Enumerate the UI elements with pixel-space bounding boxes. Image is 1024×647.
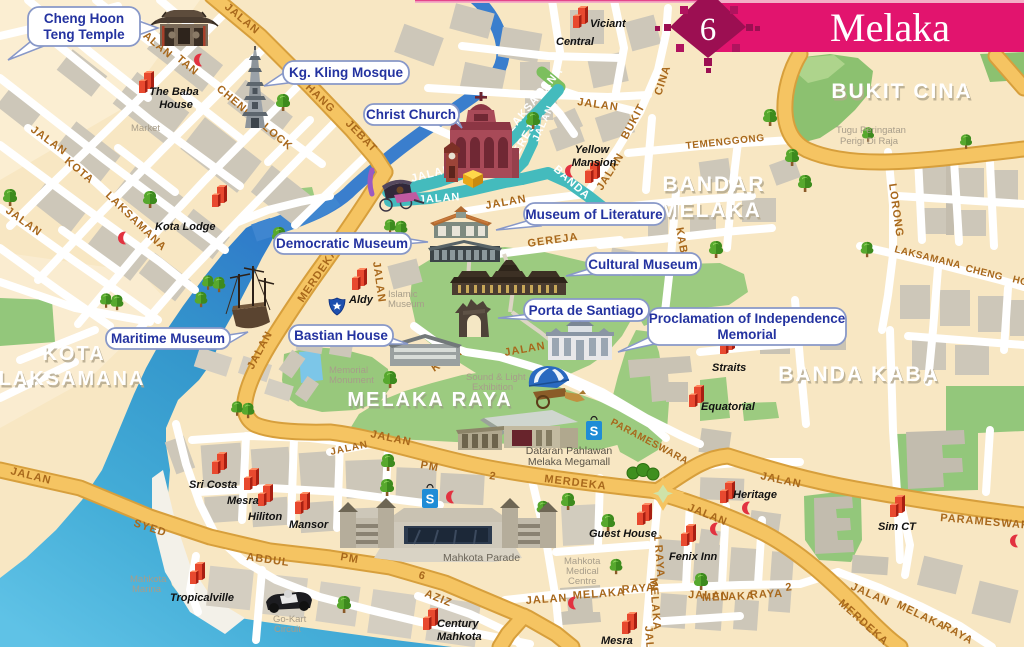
svg-text:Cheng Hoon: Cheng Hoon — [44, 11, 124, 26]
svg-text:Fenix Inn: Fenix Inn — [669, 551, 718, 563]
svg-text:Exhibition: Exhibition — [472, 382, 513, 393]
svg-text:Aldy: Aldy — [348, 294, 374, 306]
svg-text:Marina: Marina — [132, 584, 162, 595]
svg-text:Yellow: Yellow — [575, 144, 611, 156]
svg-text:Mahkota Parade: Mahkota Parade — [443, 552, 520, 564]
svg-text:Democratic Museum: Democratic Museum — [276, 236, 408, 251]
svg-text:Porta de Santiago: Porta de Santiago — [529, 303, 644, 318]
svg-text:Central: Central — [556, 36, 595, 48]
svg-text:Bastian House: Bastian House — [294, 328, 388, 343]
svg-text:Sri Costa: Sri Costa — [189, 479, 237, 491]
svg-text:RAYA: RAYA — [652, 544, 666, 578]
svg-text:BANDA KABA: BANDA KABA — [778, 363, 940, 386]
svg-text:MELAKA: MELAKA — [660, 199, 762, 222]
svg-text:Circuit: Circuit — [274, 624, 301, 635]
svg-text:Proclamation of Independence: Proclamation of Independence — [649, 311, 846, 326]
svg-text:Market: Market — [131, 123, 160, 134]
svg-text:Melaka: Melaka — [830, 5, 950, 50]
svg-text:6: 6 — [700, 12, 717, 48]
svg-text:Christ Church: Christ Church — [366, 107, 456, 122]
svg-text:JALAN: JALAN — [642, 625, 657, 647]
svg-text:BANDAR: BANDAR — [663, 173, 766, 196]
svg-text:Heritage: Heritage — [733, 489, 777, 501]
svg-text:Mesra: Mesra — [601, 635, 633, 647]
svg-text:Equatorial: Equatorial — [701, 401, 756, 413]
svg-text:Mesra: Mesra — [227, 495, 259, 507]
svg-text:The Baba: The Baba — [149, 86, 199, 98]
svg-text:BUKIT CINA: BUKIT CINA — [831, 80, 972, 103]
svg-text:Museum of Literature: Museum of Literature — [525, 207, 663, 222]
svg-text:Kg. Kling Mosque: Kg. Kling Mosque — [289, 65, 403, 80]
svg-text:Museum: Museum — [388, 299, 425, 310]
svg-text:Tugu Peringatan: Tugu Peringatan — [836, 125, 906, 136]
svg-text:Centre: Centre — [568, 576, 597, 587]
svg-text:Cultural Museum: Cultural Museum — [588, 257, 698, 272]
svg-text:Tropicalville: Tropicalville — [170, 592, 234, 604]
svg-text:House: House — [159, 99, 193, 111]
svg-text:Teng Temple: Teng Temple — [43, 27, 125, 42]
svg-text:RAYA: RAYA — [750, 588, 784, 601]
svg-text:Monument: Monument — [329, 375, 374, 386]
svg-text:Mahkota: Mahkota — [437, 631, 482, 643]
svg-text:Mansion: Mansion — [572, 157, 617, 169]
svg-text:Memorial: Memorial — [717, 327, 776, 342]
svg-text:Perigi Di Raja: Perigi Di Raja — [840, 136, 899, 147]
svg-text:Straits: Straits — [712, 362, 746, 374]
svg-text:Melaka Megamall: Melaka Megamall — [528, 456, 610, 468]
svg-text:LAKSAMANA: LAKSAMANA — [0, 368, 145, 390]
svg-text:Guest House: Guest House — [589, 528, 657, 540]
svg-text:Hiliton: Hiliton — [248, 511, 282, 523]
svg-text:KOTA: KOTA — [42, 343, 105, 365]
svg-text:Mansor: Mansor — [289, 519, 329, 531]
svg-text:JALAN: JALAN — [688, 589, 730, 602]
svg-text:Sim CT: Sim CT — [878, 521, 917, 533]
svg-text:Maritime Museum: Maritime Museum — [111, 331, 225, 346]
svg-text:Kota Lodge: Kota Lodge — [155, 221, 216, 233]
svg-text:Viciant: Viciant — [590, 18, 627, 30]
svg-text:Century: Century — [437, 618, 479, 630]
